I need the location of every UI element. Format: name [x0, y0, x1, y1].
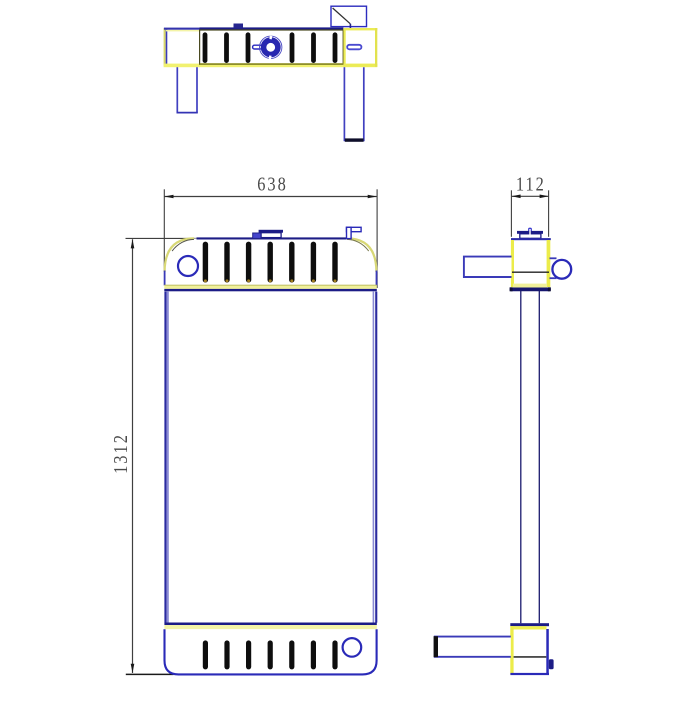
svg-text:1312: 1312: [109, 433, 132, 474]
svg-text:112: 112: [516, 173, 546, 196]
svg-text:638: 638: [257, 173, 288, 196]
